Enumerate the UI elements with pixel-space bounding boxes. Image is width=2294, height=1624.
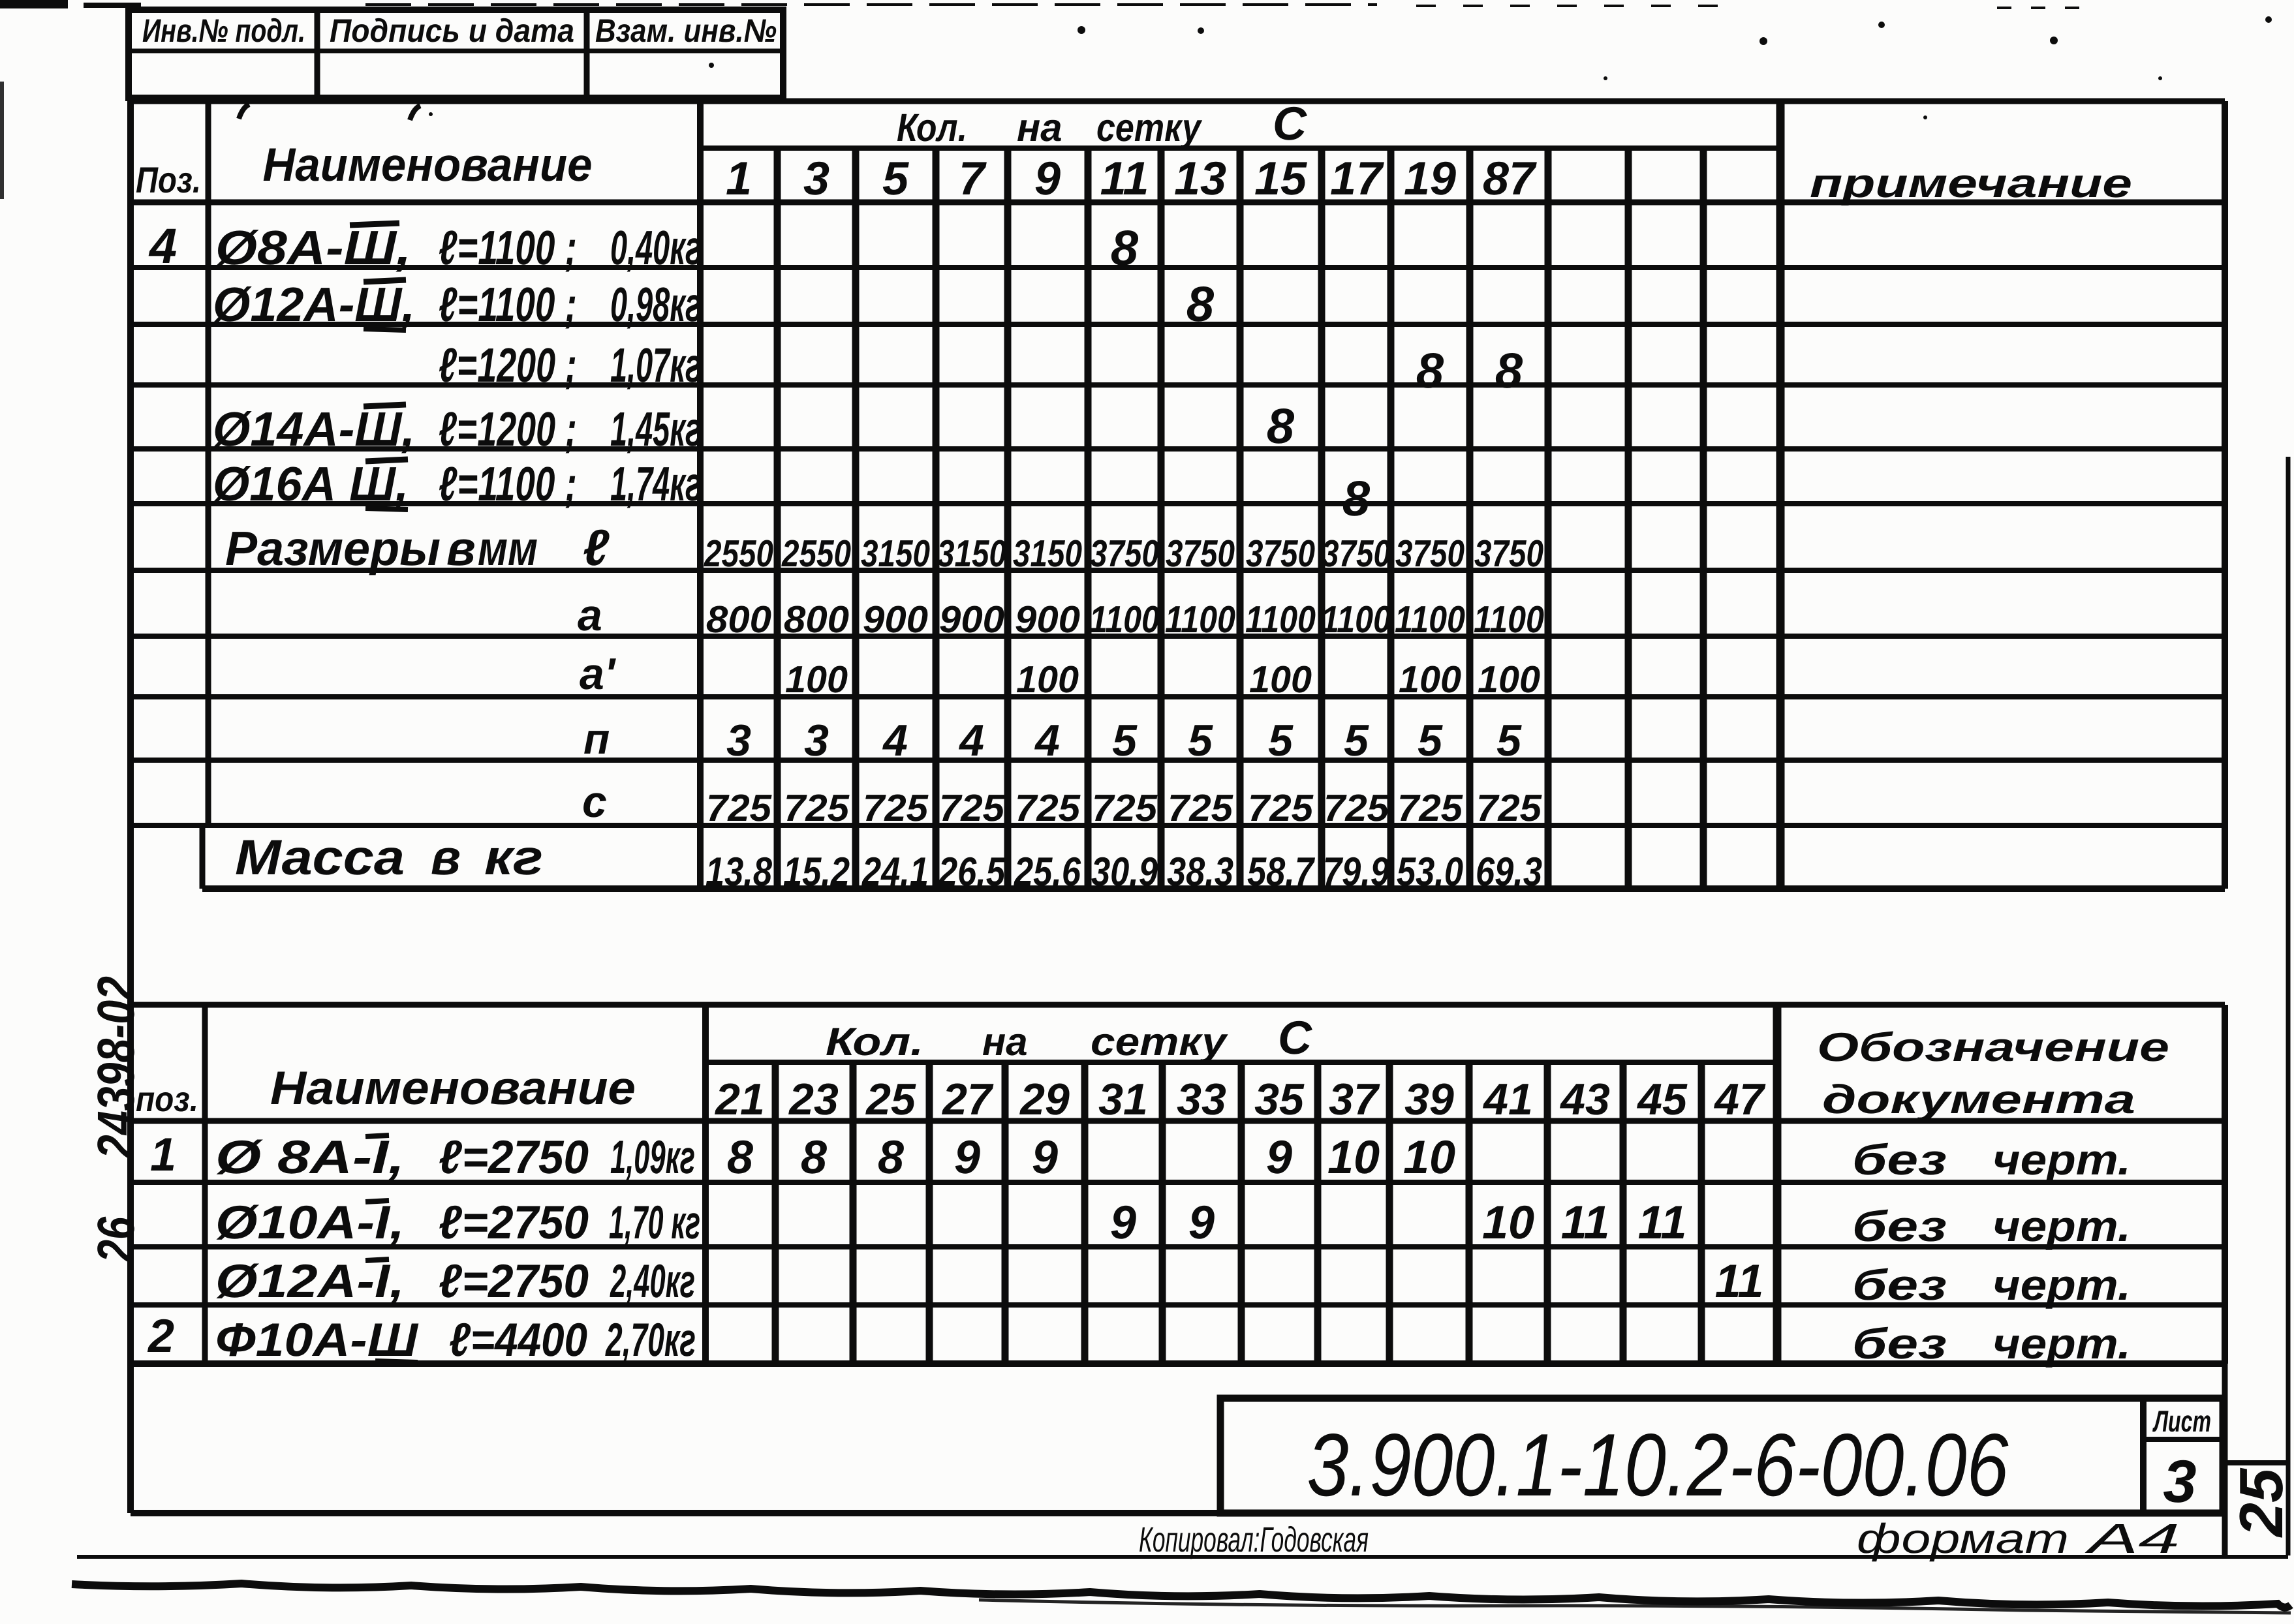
- svg-text:ℓ=1100 ;: ℓ=1100 ;: [439, 221, 577, 275]
- svg-text:Подпись и дата: Подпись и дата: [330, 12, 574, 49]
- svg-text:с: с: [582, 777, 607, 827]
- svg-text:Поз.: Поз.: [136, 159, 201, 200]
- svg-text:1,45кг: 1,45кг: [610, 402, 702, 456]
- svg-text:3750: 3750: [1474, 532, 1543, 575]
- svg-text:Ø 8А-I,: Ø 8А-I,: [215, 1131, 405, 1184]
- svg-text:в: в: [431, 830, 461, 885]
- svg-text:3150: 3150: [1013, 532, 1082, 575]
- svg-text:9: 9: [954, 1131, 980, 1184]
- svg-text:39: 39: [1404, 1075, 1454, 1124]
- svg-text:1100: 1100: [1165, 598, 1235, 641]
- svg-text:725: 725: [1168, 787, 1233, 829]
- svg-text:3150: 3150: [937, 532, 1006, 575]
- svg-text:2550: 2550: [704, 532, 773, 575]
- svg-text:7: 7: [959, 153, 987, 205]
- svg-text:13,8: 13,8: [705, 850, 772, 895]
- svg-text:69,3: 69,3: [1476, 850, 1542, 895]
- svg-text:4: 4: [1034, 716, 1060, 765]
- svg-text:С: С: [1278, 1012, 1312, 1064]
- svg-text:58,7: 58,7: [1247, 850, 1315, 895]
- svg-text:8: 8: [1416, 343, 1444, 399]
- svg-text:0,40кг: 0,40кг: [610, 221, 702, 275]
- svg-text:ℓ=1200 ;: ℓ=1200 ;: [439, 338, 577, 392]
- svg-text:37: 37: [1329, 1075, 1380, 1124]
- svg-text:ℓ=1100 ;: ℓ=1100 ;: [439, 457, 577, 511]
- svg-text:10: 10: [1327, 1131, 1380, 1184]
- svg-text:5: 5: [882, 153, 909, 205]
- svg-text:ℓ=2750: ℓ=2750: [439, 1255, 589, 1308]
- svg-text:1,07кг: 1,07кг: [610, 338, 702, 392]
- svg-text:3.900.1-10.2-6-00.06: 3.900.1-10.2-6-00.06: [1307, 1415, 2009, 1514]
- svg-text:1,09кг: 1,09кг: [610, 1131, 695, 1184]
- svg-text:ℓ: ℓ: [583, 519, 610, 576]
- svg-text:5: 5: [1344, 716, 1369, 765]
- svg-text:26: 26: [87, 1217, 145, 1264]
- svg-text:25: 25: [865, 1075, 916, 1124]
- svg-text:Ø14А-Ш,: Ø14А-Ш,: [213, 402, 415, 456]
- svg-text:5: 5: [1188, 716, 1213, 765]
- svg-text:3: 3: [803, 153, 829, 205]
- svg-text:900: 900: [863, 598, 928, 641]
- svg-text:Размеры: Размеры: [225, 521, 441, 575]
- svg-text:9: 9: [1110, 1197, 1136, 1249]
- svg-text:30,9: 30,9: [1091, 850, 1158, 895]
- svg-text:4: 4: [882, 716, 908, 765]
- svg-text:19: 19: [1404, 153, 1456, 205]
- svg-text:3750: 3750: [1395, 532, 1465, 575]
- svg-text:ℓ=2750: ℓ=2750: [439, 1131, 589, 1184]
- svg-text:3750: 3750: [1322, 532, 1391, 575]
- svg-text:725: 725: [1015, 787, 1081, 829]
- svg-text:725: 725: [784, 787, 850, 829]
- svg-text:100: 100: [1016, 658, 1079, 701]
- svg-text:Ø8А-Ш,: Ø8А-Ш,: [215, 221, 411, 275]
- svg-text:23: 23: [788, 1075, 839, 1124]
- svg-text:3150: 3150: [861, 532, 930, 575]
- svg-text:3750: 3750: [1246, 532, 1315, 575]
- svg-text:3750: 3750: [1090, 532, 1159, 575]
- svg-text:Обозначение: Обозначение: [1817, 1025, 2169, 1070]
- svg-text:3: 3: [804, 716, 829, 765]
- svg-text:Копировал:Годовская: Копировал:Годовская: [1139, 1520, 1369, 1559]
- svg-text:725: 725: [1324, 787, 1389, 829]
- svg-text:100: 100: [1399, 658, 1461, 701]
- svg-text:ℓ=2750: ℓ=2750: [439, 1197, 589, 1249]
- svg-text:3: 3: [726, 716, 751, 765]
- svg-text:Ø10А-I,: Ø10А-I,: [215, 1197, 405, 1249]
- svg-text:8: 8: [878, 1131, 904, 1184]
- svg-text:сетку: сетку: [1091, 1020, 1228, 1064]
- svg-text:8: 8: [1111, 221, 1139, 276]
- svg-text:черт.: черт.: [1992, 1319, 2131, 1368]
- svg-text:800: 800: [784, 598, 849, 641]
- svg-text:а': а': [580, 649, 617, 699]
- svg-text:33: 33: [1177, 1075, 1226, 1124]
- svg-text:15,2: 15,2: [783, 850, 850, 895]
- svg-text:без: без: [1852, 1261, 1947, 1309]
- svg-text:Ф10А-Ш: Ф10А-Ш: [215, 1314, 419, 1366]
- svg-text:53,0: 53,0: [1397, 850, 1463, 895]
- svg-text:3750: 3750: [1166, 532, 1235, 575]
- svg-text:0,98кг: 0,98кг: [610, 277, 702, 331]
- svg-text:38,3: 38,3: [1167, 850, 1233, 895]
- svg-text:а: а: [578, 590, 602, 640]
- svg-text:725: 725: [1397, 787, 1463, 829]
- svg-text:725: 725: [1248, 787, 1314, 829]
- svg-text:11: 11: [1638, 1197, 1687, 1249]
- svg-text:10: 10: [1482, 1197, 1534, 1249]
- svg-text:С: С: [1273, 98, 1307, 150]
- svg-text:без: без: [1852, 1202, 1947, 1250]
- svg-text:25,6: 25,6: [1014, 850, 1081, 895]
- svg-text:Наименование: Наименование: [270, 1062, 636, 1114]
- svg-text:9: 9: [1032, 1131, 1058, 1184]
- svg-text:45: 45: [1636, 1075, 1688, 1124]
- svg-text:ℓ=1100 ;: ℓ=1100 ;: [439, 277, 577, 331]
- svg-text:без: без: [1852, 1319, 1947, 1368]
- svg-text:Ø16А Ш,: Ø16А Ш,: [213, 457, 409, 511]
- svg-text:на: на: [1017, 106, 1062, 149]
- svg-text:24,1: 24,1: [861, 850, 929, 895]
- svg-text:в: в: [446, 521, 476, 575]
- svg-text:5: 5: [1268, 716, 1294, 765]
- svg-text:3: 3: [2163, 1448, 2196, 1515]
- svg-text:5: 5: [1418, 716, 1443, 765]
- svg-text:29: 29: [1019, 1075, 1070, 1124]
- svg-text:26,5: 26,5: [938, 850, 1006, 895]
- svg-text:1: 1: [150, 1129, 176, 1181]
- svg-text:2550: 2550: [781, 532, 851, 575]
- svg-text:725: 725: [1476, 787, 1542, 829]
- svg-text:мм: мм: [478, 521, 538, 575]
- svg-text:41: 41: [1482, 1075, 1533, 1124]
- svg-text:документа: документа: [1822, 1077, 2135, 1122]
- svg-text:1100: 1100: [1321, 598, 1391, 641]
- svg-text:Ø12А-Ш,: Ø12А-Ш,: [213, 277, 415, 331]
- svg-text:47: 47: [1713, 1075, 1766, 1124]
- svg-text:8: 8: [1267, 399, 1295, 454]
- svg-text:черт.: черт.: [1992, 1135, 2131, 1184]
- svg-text:поз.: поз.: [136, 1080, 198, 1119]
- svg-text:Масса: Масса: [235, 830, 405, 885]
- svg-text:11: 11: [1561, 1197, 1610, 1249]
- svg-text:Наименование: Наименование: [263, 139, 593, 191]
- svg-text:1100: 1100: [1089, 598, 1160, 641]
- svg-text:1: 1: [726, 153, 752, 205]
- svg-text:8: 8: [1342, 471, 1371, 527]
- svg-text:4: 4: [148, 219, 177, 274]
- svg-text:25: 25: [2227, 1467, 2294, 1538]
- svg-text:8: 8: [1186, 277, 1215, 332]
- svg-text:примечание: примечание: [1810, 161, 2132, 206]
- svg-text:725: 725: [863, 787, 929, 829]
- svg-text:15: 15: [1254, 153, 1307, 205]
- svg-text:8: 8: [727, 1131, 753, 1184]
- svg-text:900: 900: [1015, 598, 1080, 641]
- svg-text:Взам. инв.№: Взам. инв.№: [595, 12, 777, 49]
- svg-text:11: 11: [1715, 1255, 1764, 1308]
- svg-text:без: без: [1852, 1135, 1947, 1184]
- svg-text:1,70 кг: 1,70 кг: [609, 1197, 700, 1249]
- svg-text:900: 900: [939, 598, 1004, 641]
- svg-text:1100: 1100: [1245, 598, 1316, 641]
- svg-text:11: 11: [1100, 153, 1149, 205]
- svg-text:9: 9: [1188, 1197, 1215, 1249]
- svg-text:9: 9: [1266, 1131, 1292, 1184]
- svg-text:2,40кг: 2,40кг: [610, 1255, 695, 1308]
- svg-text:Кол.: Кол.: [826, 1020, 923, 1064]
- svg-text:сетку: сетку: [1096, 106, 1202, 149]
- svg-text:ℓ=1200 ;: ℓ=1200 ;: [439, 402, 577, 456]
- svg-text:10: 10: [1403, 1131, 1455, 1184]
- svg-text:черт.: черт.: [1992, 1261, 2131, 1309]
- svg-text:на: на: [982, 1020, 1028, 1064]
- svg-text:ℓ=4400: ℓ=4400: [449, 1314, 587, 1366]
- svg-text:Лист: Лист: [2152, 1404, 2211, 1438]
- svg-text:1,74кг: 1,74кг: [610, 457, 702, 511]
- svg-text:8: 8: [801, 1131, 827, 1184]
- svg-text:1100: 1100: [1395, 598, 1465, 641]
- svg-text:725: 725: [939, 787, 1005, 829]
- svg-text:9: 9: [1034, 153, 1061, 205]
- svg-text:2,70кг: 2,70кг: [605, 1314, 696, 1366]
- svg-text:5: 5: [1112, 716, 1138, 765]
- svg-text:кг: кг: [484, 830, 543, 885]
- svg-text:1100: 1100: [1474, 598, 1544, 641]
- svg-text:4: 4: [958, 716, 984, 765]
- svg-text:Ø12А-I,: Ø12А-I,: [215, 1255, 405, 1308]
- svg-text:Инв.№ подл.: Инв.№ подл.: [142, 12, 305, 49]
- svg-text:800: 800: [706, 598, 771, 641]
- svg-text:13: 13: [1174, 153, 1226, 205]
- svg-text:725: 725: [1092, 787, 1158, 829]
- svg-text:87: 87: [1483, 153, 1537, 205]
- svg-text:21: 21: [714, 1075, 765, 1124]
- svg-text:725: 725: [706, 787, 772, 829]
- svg-text:100: 100: [785, 658, 848, 701]
- svg-text:2: 2: [147, 1310, 174, 1362]
- svg-text:31: 31: [1098, 1075, 1148, 1124]
- svg-text:17: 17: [1330, 153, 1384, 205]
- svg-text:Кол.: Кол.: [897, 106, 967, 149]
- svg-text:черт.: черт.: [1992, 1202, 2131, 1250]
- svg-text:79,9: 79,9: [1323, 850, 1389, 895]
- svg-text:27: 27: [941, 1075, 994, 1124]
- svg-text:5: 5: [1496, 716, 1522, 765]
- svg-text:43: 43: [1559, 1075, 1610, 1124]
- svg-text:п: п: [583, 714, 610, 763]
- svg-text:100: 100: [1478, 658, 1540, 701]
- svg-text:35: 35: [1254, 1075, 1305, 1124]
- svg-text:8: 8: [1495, 343, 1523, 399]
- svg-text:100: 100: [1249, 658, 1312, 701]
